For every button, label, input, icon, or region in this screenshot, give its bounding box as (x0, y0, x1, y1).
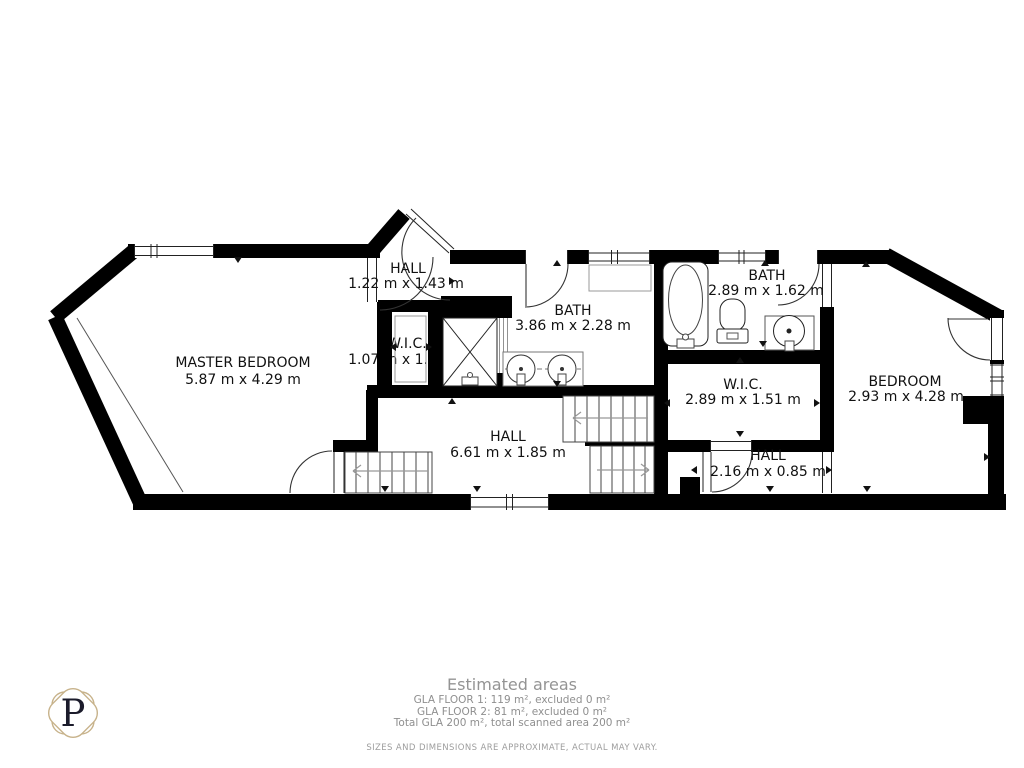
wall-vestibule-diagonal (371, 214, 404, 252)
window-bath-second (718, 250, 766, 264)
room-label-master-bedroom: MASTER BEDROOM 5.87 m x 4.29 m (175, 355, 310, 388)
room-label: HALL (750, 448, 786, 464)
room-label-bath-main: BATH 3.86 m x 2.28 m (515, 303, 631, 334)
bath-niche (589, 265, 651, 291)
window-bath-main (588, 250, 650, 264)
wall-shower-top (441, 296, 512, 318)
wall-nub-stairs (333, 440, 378, 452)
entry-door-frame-diagonal (406, 209, 454, 253)
wall-bedroom-east-lower (988, 424, 1004, 494)
wall-nub-hall2 (680, 477, 700, 494)
room-dims: 2.93 m x 4.28 m (848, 389, 964, 405)
wall-diagonal-left-upper (55, 250, 135, 317)
door-opening-bedroom (990, 318, 1004, 360)
toilet (717, 299, 748, 343)
room-dims: 2.89 m x 1.62 m (708, 283, 824, 299)
room-dims: 2.89 m x 1.51 m (685, 392, 801, 408)
room-dims: 3.86 m x 2.28 m (515, 318, 631, 334)
floorplan-page: W.I.C. 1.07 m x 1.33 m (0, 0, 1024, 768)
window-bedroom-east (990, 364, 1004, 396)
room-dims: 6.61 m x 1.85 m (450, 445, 566, 461)
room-label-wic-large: W.I.C. 2.89 m x 1.51 m (685, 377, 801, 408)
room-label-hall-entry: HALL 1.22 m x 1.43 m (348, 261, 464, 292)
room-dims: 1.22 m x 1.43 m (348, 276, 464, 292)
room-label: HALL (390, 261, 426, 277)
stairs-left (345, 452, 432, 493)
wall-bedroom-east-1 (990, 310, 1004, 318)
room-label-bedroom: BEDROOM 2.93 m x 4.28 m (848, 374, 964, 405)
room-dims: 2.16 m x 0.85 m (710, 464, 826, 480)
room-label: BATH (748, 268, 785, 284)
floor-plan: W.I.C. 1.07 m x 1.33 m (0, 0, 1024, 768)
room-label-hall-main: HALL 6.61 m x 1.85 m (450, 429, 566, 461)
room-label: BEDROOM (868, 374, 941, 390)
room-label: MASTER BEDROOM (175, 355, 310, 371)
room-label-bath-second: BATH 2.89 m x 1.62 m (708, 268, 824, 299)
wall-bath2-south (654, 350, 834, 364)
wall-bottom (133, 494, 1006, 510)
door-opening-wic2 (710, 440, 752, 452)
window-master-north (134, 244, 214, 258)
door-arc-bath-main (525, 264, 568, 307)
sink (765, 316, 814, 352)
wall-diagonal-left-lower (55, 317, 141, 504)
bathtub (663, 262, 708, 348)
room-label-hall-small: HALL 2.16 m x 0.85 m (710, 448, 826, 480)
estimated-areas-title: Estimated areas (0, 676, 1024, 693)
wall-bath2-east (820, 307, 834, 352)
stairs-upper-right (563, 396, 654, 442)
room-label: BATH (554, 303, 591, 319)
door-arc-master (290, 451, 332, 493)
room-label: W.I.C. (723, 377, 763, 393)
gla-total: Total GLA 200 m², total scanned area 200… (0, 718, 1024, 730)
door-opening-bath-main (525, 250, 568, 264)
stairs-lower-right (590, 446, 654, 493)
footer: Estimated areas GLA FLOOR 1: 119 m², exc… (0, 676, 1024, 753)
double-vanity (503, 352, 583, 386)
room-dims: 5.87 m x 4.29 m (185, 372, 301, 388)
wall-bedroom-east-block (963, 396, 1004, 424)
room-label: HALL (490, 429, 526, 445)
door-opening-master (333, 452, 345, 494)
door-opening-bath-second (778, 250, 818, 264)
window-hall-south (470, 494, 549, 510)
wall-wic2-east (820, 364, 834, 452)
wall-bedroom-east-2 (990, 360, 1004, 364)
room-label: W.I.C. (387, 336, 427, 352)
wall-diagonal-top-right (886, 255, 999, 317)
disclaimer: SIZES AND DIMENSIONS ARE APPROXIMATE, AC… (0, 743, 1024, 753)
gla-floor1: GLA FLOOR 1: 119 m², excluded 0 m² (0, 695, 1024, 707)
door-arc-bedroom (948, 318, 990, 360)
wall-wic-west (377, 300, 392, 390)
